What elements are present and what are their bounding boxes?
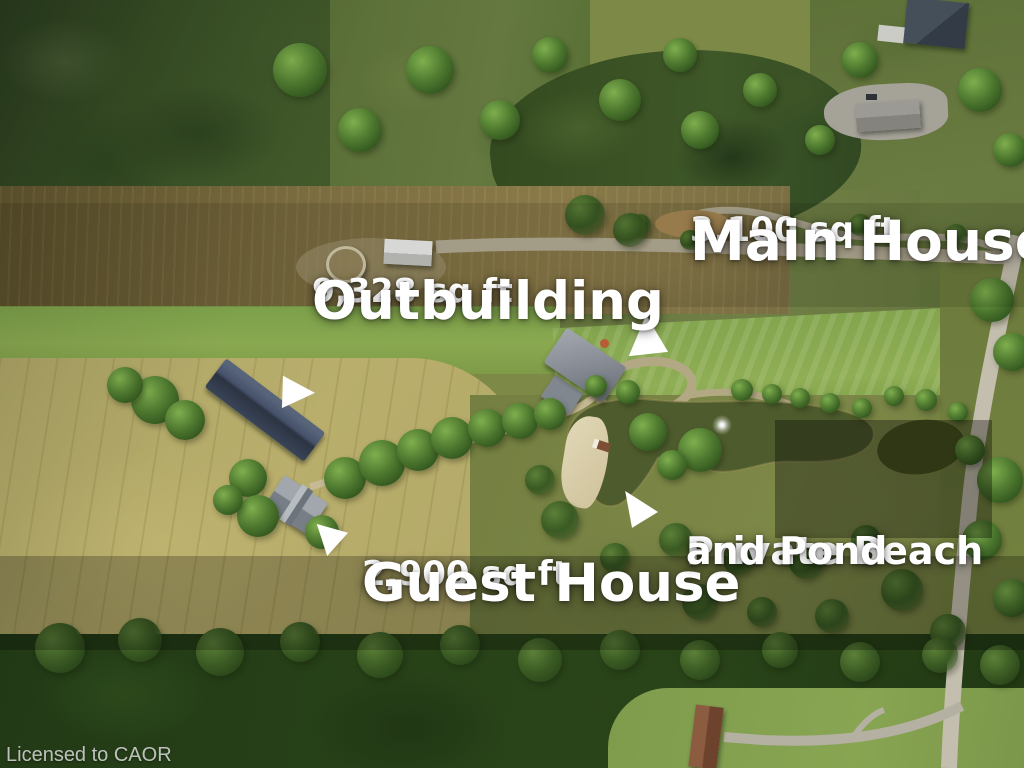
shrub [915, 389, 937, 411]
dark-exposure-rect [775, 420, 992, 538]
neighbor-patio [877, 25, 905, 44]
tree [657, 450, 687, 480]
main-house-cupola [600, 339, 609, 348]
tree [629, 413, 667, 451]
tree [663, 38, 697, 72]
tree [525, 465, 555, 495]
aerial-photo: 3,100 sq ft Main House 9,328 sq ft Outbu… [0, 0, 1024, 768]
tree [107, 367, 143, 403]
tree [842, 42, 878, 78]
neighbor-house [903, 0, 969, 49]
license-watermark: Licensed to CAOR [6, 744, 172, 767]
tree [958, 68, 1002, 112]
shrub [731, 379, 753, 401]
outbuilding-name: Outbuilding [312, 274, 664, 330]
tree [534, 398, 566, 430]
beach-pond-line2: and Pond [686, 528, 887, 574]
tree [599, 79, 641, 121]
tree [406, 46, 454, 94]
parking-building [855, 100, 921, 132]
guest-house-name: Guest House [362, 556, 741, 612]
shrub [820, 393, 840, 413]
parked-car [866, 94, 877, 100]
tree [616, 380, 640, 404]
tree [743, 73, 777, 107]
tree [541, 501, 579, 539]
shrub [884, 386, 904, 406]
tree [532, 37, 568, 73]
pond-fountain [712, 415, 732, 435]
tree [338, 108, 382, 152]
shrub [852, 398, 872, 418]
tree [468, 409, 506, 447]
tree [805, 125, 835, 155]
bottom-driveway [724, 706, 962, 741]
tree [993, 333, 1024, 371]
tree [480, 100, 520, 140]
tree [980, 645, 1020, 685]
tree [213, 485, 243, 515]
tree [502, 403, 538, 439]
shrub [790, 388, 810, 408]
tree [993, 133, 1024, 167]
tree [237, 495, 279, 537]
shrub [948, 402, 968, 422]
tree [681, 111, 719, 149]
main-house-name: Main House [690, 212, 1024, 270]
tree [165, 400, 205, 440]
tree [585, 375, 607, 397]
tree [431, 417, 473, 459]
tree [273, 43, 327, 97]
shrub [762, 384, 782, 404]
